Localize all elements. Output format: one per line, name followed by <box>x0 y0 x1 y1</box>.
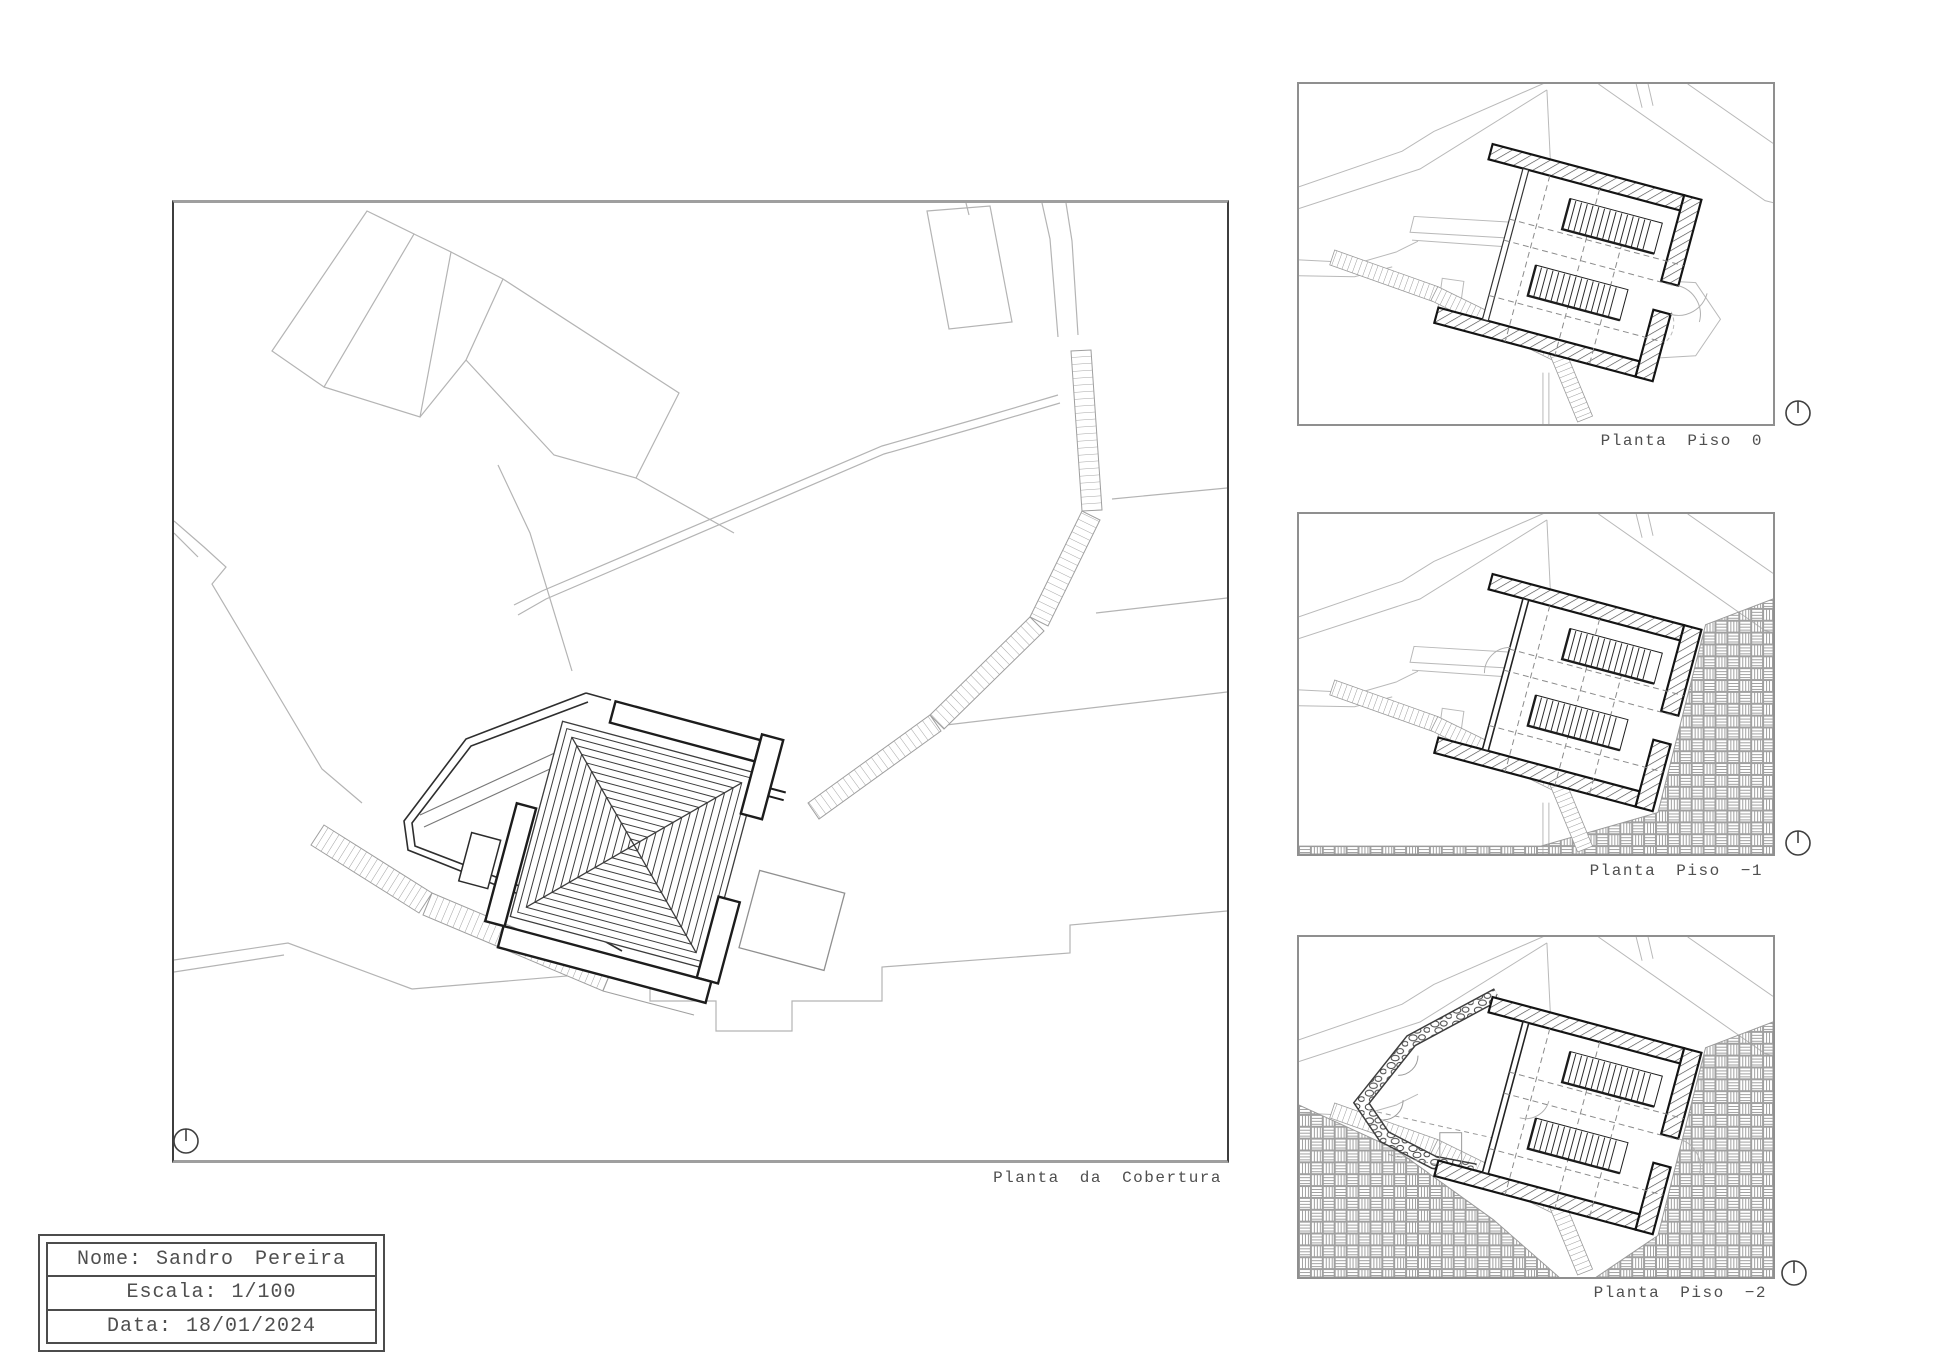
title-block-inner: Nome: Sandro Pereira Escala: 1/100 Data:… <box>46 1242 377 1344</box>
piso-1-label: Planta Piso −1 <box>1500 862 1763 880</box>
escala-value: 1/100 <box>232 1281 297 1304</box>
north-arrow-icon <box>1778 1256 1810 1288</box>
nome-value: Sandro Pereira <box>156 1248 346 1271</box>
building-plan <box>1434 141 1730 388</box>
title-block-row-escala: Escala: 1/100 <box>48 1275 375 1308</box>
data-label: Data: <box>107 1315 172 1338</box>
piso0-label: Planta Piso 0 <box>1500 432 1763 450</box>
north-arrow-icon <box>170 1124 202 1156</box>
title-block: Nome: Sandro Pereira Escala: 1/100 Data:… <box>38 1234 385 1352</box>
floor-plan-piso-1-panel <box>1297 512 1775 856</box>
floor-plan-piso0-panel <box>1297 82 1775 426</box>
stepped-walkway <box>808 350 1102 819</box>
title-block-row-nome: Nome: Sandro Pereira <box>48 1244 375 1275</box>
nome-label: Nome: <box>77 1248 142 1271</box>
roof-plan-panel <box>172 200 1229 1163</box>
data-value: 18/01/2024 <box>186 1315 316 1338</box>
small-annex <box>459 833 501 889</box>
roof-plan-label: Planta da Cobertura <box>960 1169 1222 1187</box>
architectural-sheet: Planta da Cobertura <box>0 0 1938 1360</box>
floor-plan-piso-2-panel <box>1297 935 1775 1279</box>
building-plan <box>1434 571 1701 811</box>
roof-plan-drawing <box>174 203 1227 1160</box>
piso0-drawing <box>1299 84 1773 424</box>
piso-2-label: Planta Piso −2 <box>1504 1284 1767 1302</box>
piso-2-drawing <box>1299 937 1773 1277</box>
title-block-row-data: Data: 18/01/2024 <box>48 1309 375 1342</box>
north-arrow-icon <box>1782 826 1814 858</box>
annex-roof <box>739 870 845 970</box>
piso-1-drawing <box>1299 514 1773 854</box>
north-arrow-icon <box>1782 396 1814 428</box>
escala-label: Escala: <box>126 1281 217 1304</box>
